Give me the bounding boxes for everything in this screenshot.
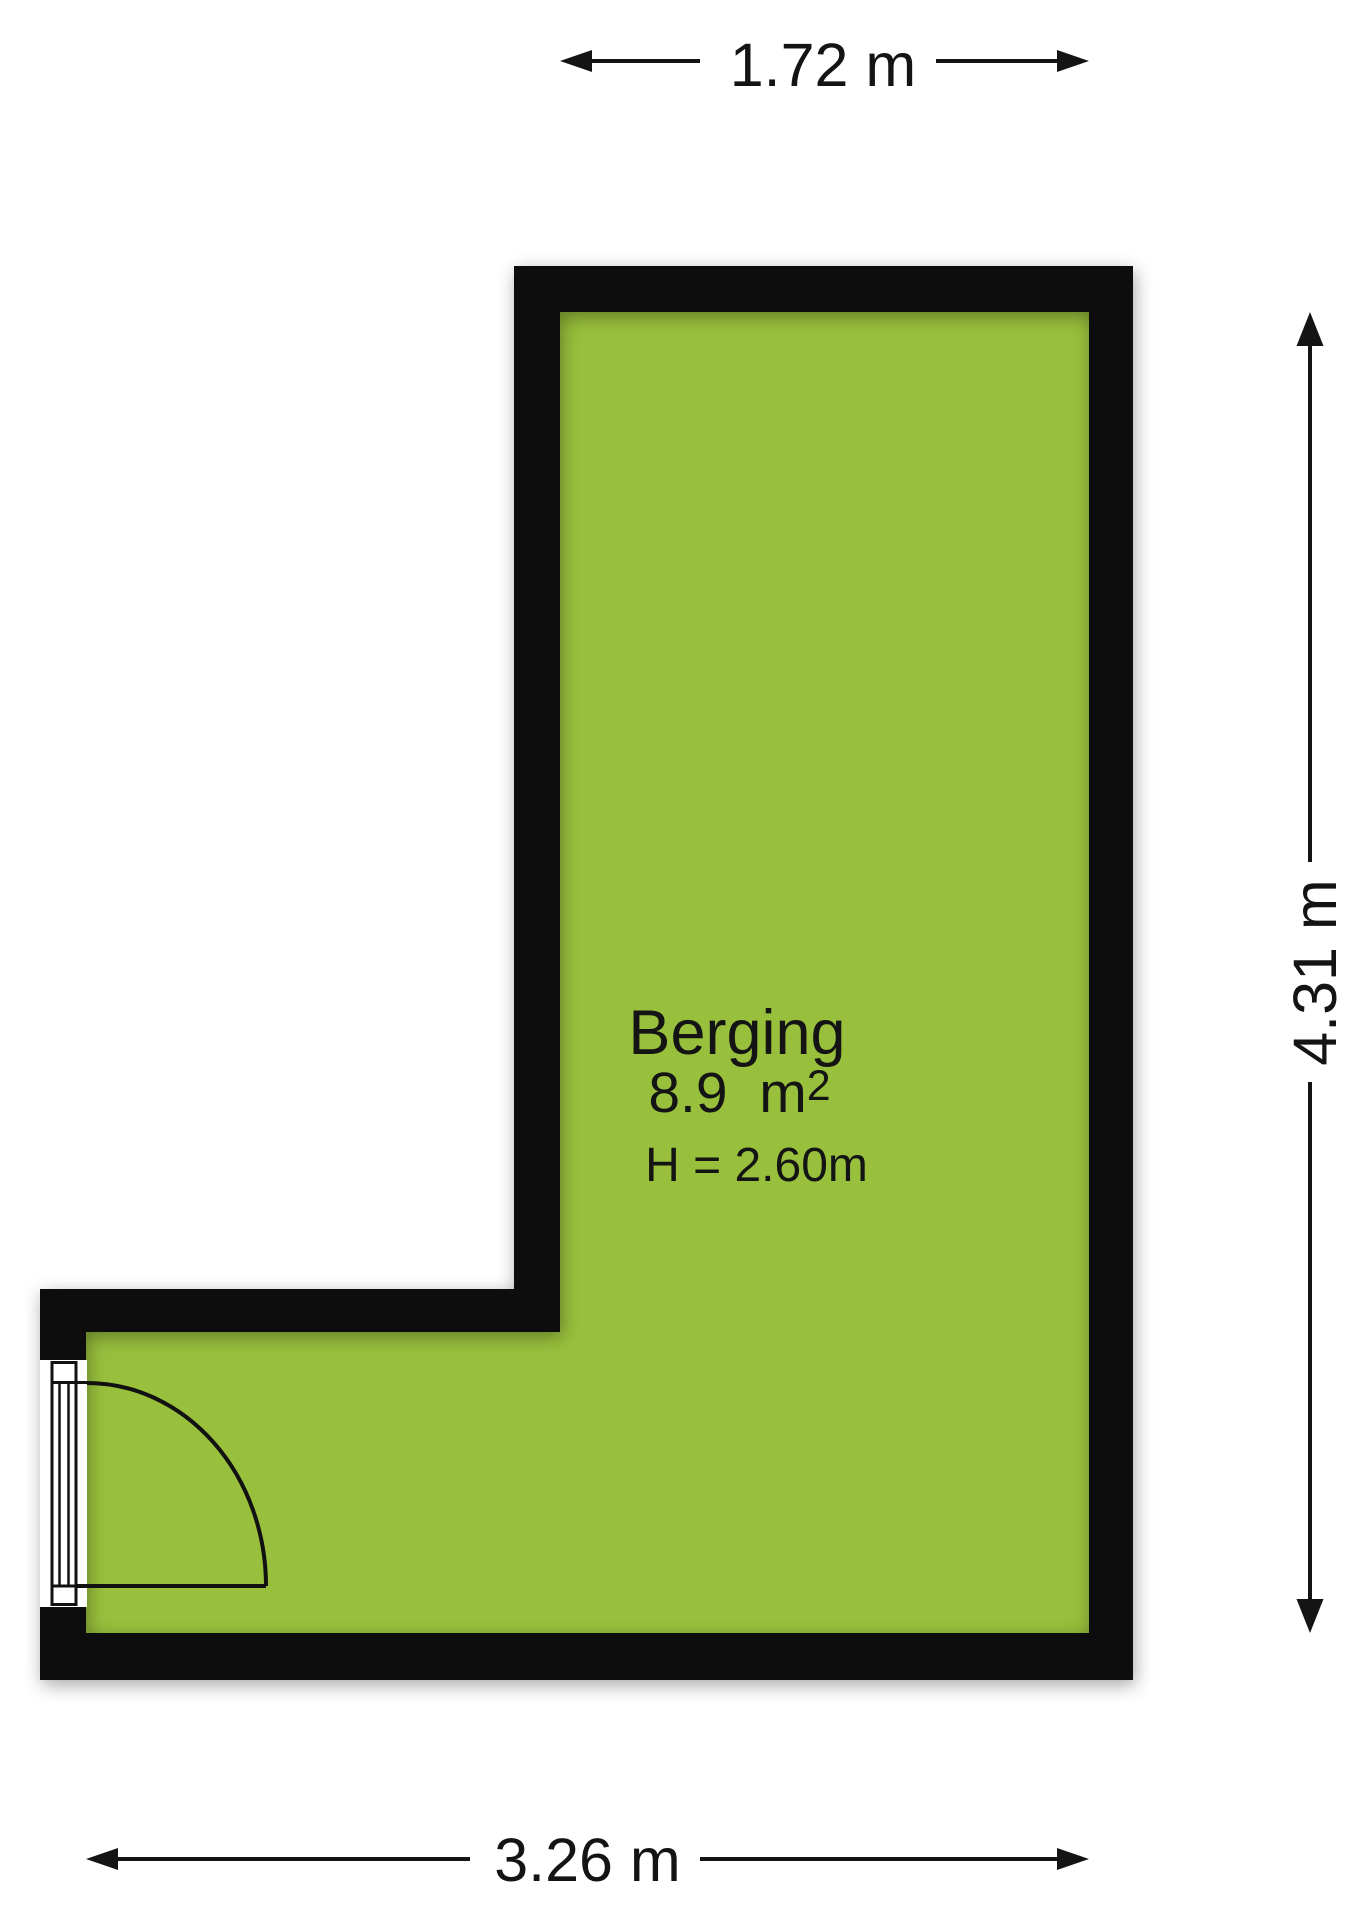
svg-text:H = 2.60m: H = 2.60m — [645, 1139, 868, 1192]
svg-text:8.9 m2: 8.9 m2 — [648, 1061, 830, 1125]
svg-text:Berging: Berging — [628, 998, 845, 1068]
svg-text:3.26 m: 3.26 m — [494, 1826, 681, 1894]
svg-text:4.31 m: 4.31 m — [1281, 879, 1349, 1066]
svg-text:1.72 m: 1.72 m — [730, 31, 917, 99]
